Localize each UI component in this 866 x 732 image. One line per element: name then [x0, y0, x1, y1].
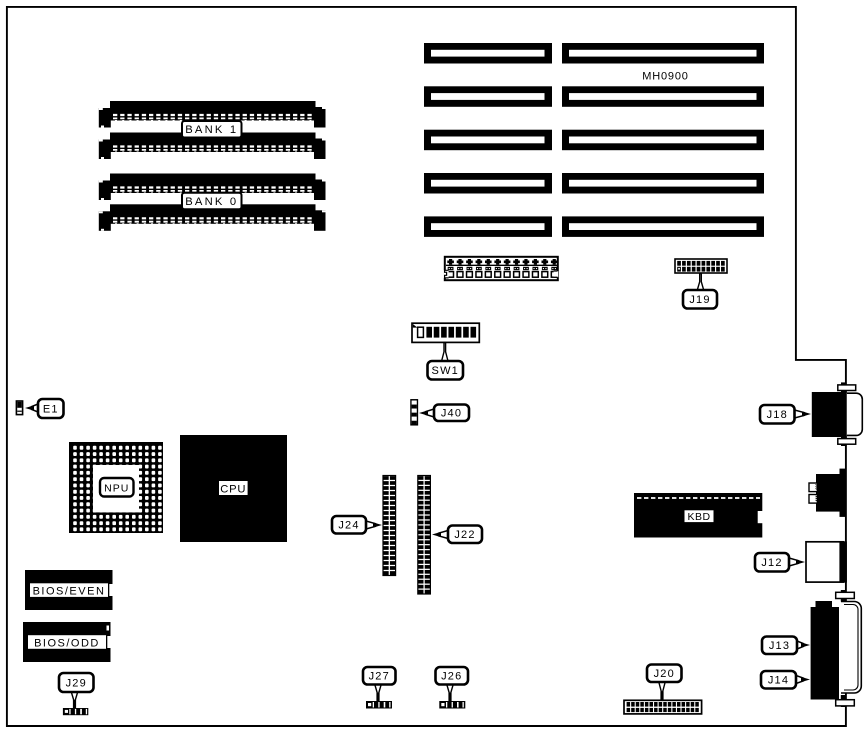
svg-text:J24: J24 — [338, 520, 359, 532]
svg-text:KBD: KBD — [687, 511, 710, 523]
svg-text:BIOS/ODD: BIOS/ODD — [34, 638, 100, 650]
svg-text:NPU: NPU — [104, 483, 129, 495]
svg-text:J40: J40 — [441, 408, 462, 420]
svg-text:BIOS/EVEN: BIOS/EVEN — [33, 586, 106, 598]
svg-text:J29: J29 — [66, 677, 87, 689]
svg-text:E1: E1 — [43, 403, 59, 415]
svg-text:J19: J19 — [689, 294, 710, 306]
svg-text:J26: J26 — [441, 671, 462, 683]
svg-text:BANK 0: BANK 0 — [185, 196, 238, 208]
svg-text:J18: J18 — [767, 409, 788, 421]
svg-text:BANK 1: BANK 1 — [185, 124, 238, 136]
svg-text:J12: J12 — [761, 557, 782, 569]
svg-text:J27: J27 — [369, 671, 390, 683]
svg-text:J13: J13 — [769, 640, 790, 652]
svg-text:SW1: SW1 — [432, 365, 459, 377]
svg-text:J14: J14 — [768, 675, 789, 687]
svg-text:J22: J22 — [454, 529, 475, 541]
svg-text:J20: J20 — [654, 668, 675, 680]
svg-text:MH0900: MH0900 — [642, 71, 688, 83]
svg-text:CPU: CPU — [220, 484, 246, 496]
